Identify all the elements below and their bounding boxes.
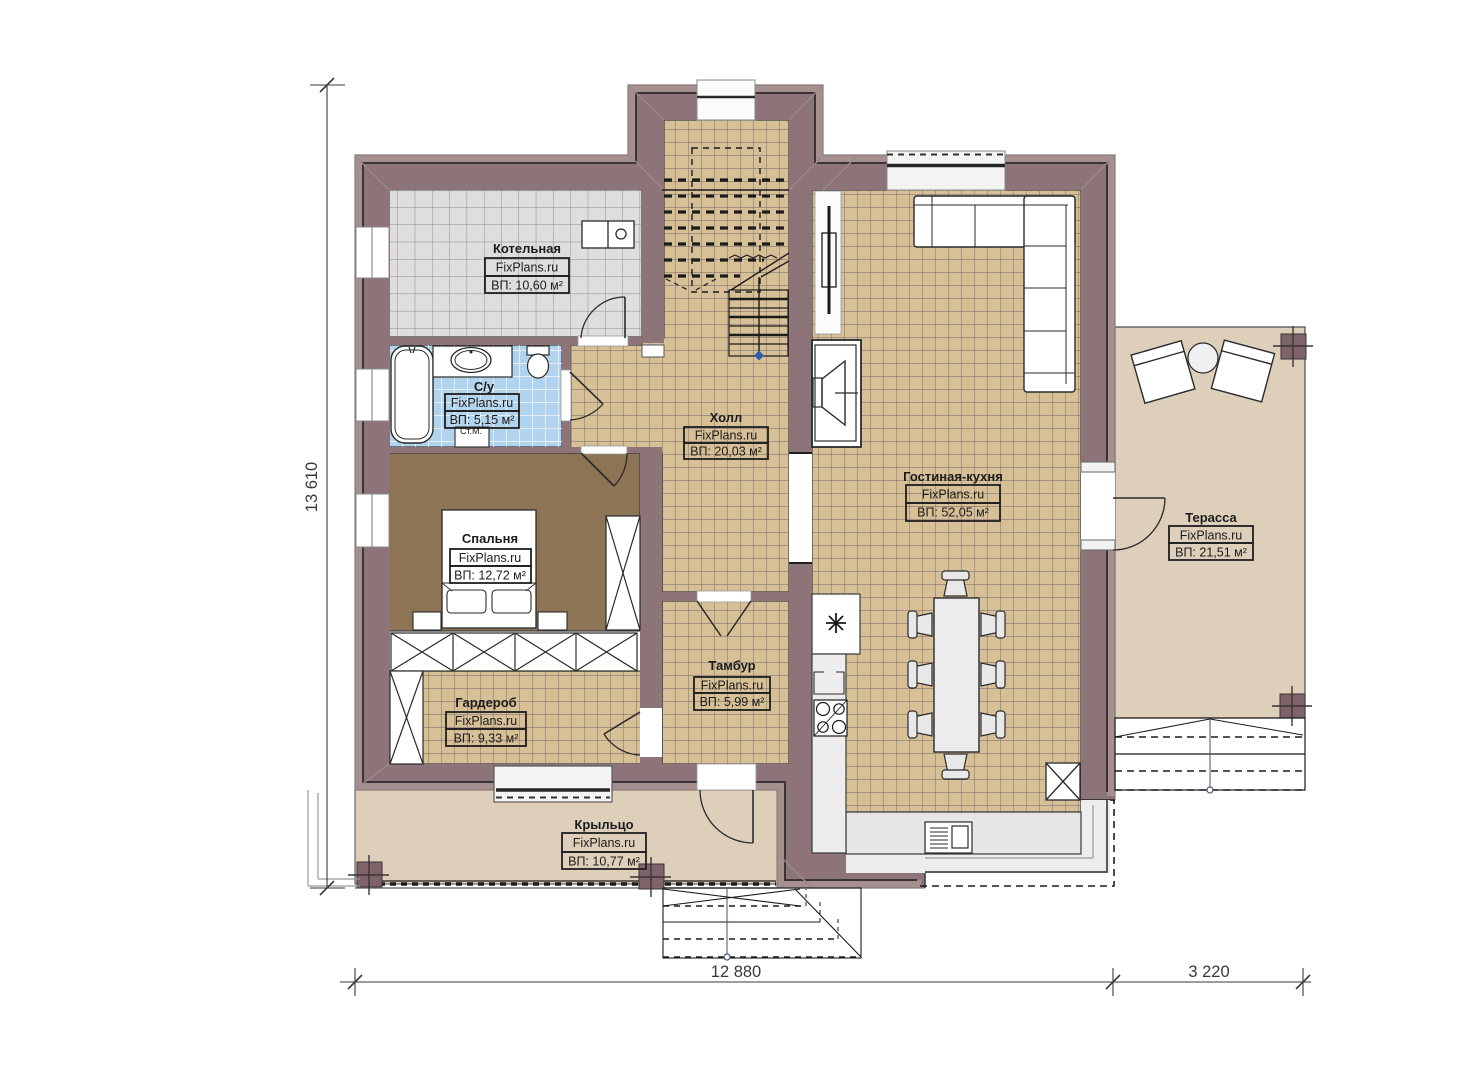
svg-text:ВП: 21,51 м²: ВП: 21,51 м² <box>1175 546 1247 560</box>
svg-text:FixPlans.ru: FixPlans.ru <box>455 714 518 728</box>
svg-text:Ст.М.: Ст.М. <box>460 426 482 436</box>
svg-text:С/у: С/у <box>474 379 495 394</box>
svg-text:Холл: Холл <box>710 410 743 425</box>
svg-text:12 880: 12 880 <box>711 963 761 981</box>
svg-text:ВП: 10,77 м²: ВП: 10,77 м² <box>568 855 640 869</box>
svg-text:FixPlans.ru: FixPlans.ru <box>1180 529 1243 543</box>
svg-text:FixPlans.ru: FixPlans.ru <box>496 261 559 275</box>
svg-text:Гостиная-кухня: Гостиная-кухня <box>903 469 1003 484</box>
svg-text:ВП: 5,99 м²: ВП: 5,99 м² <box>700 695 765 709</box>
svg-text:FixPlans.ru: FixPlans.ru <box>695 429 758 443</box>
svg-text:ВП: 12,72 м²: ВП: 12,72 м² <box>454 569 526 583</box>
svg-text:FixPlans.ru: FixPlans.ru <box>459 551 522 565</box>
svg-text:Терасса: Терасса <box>1185 510 1237 525</box>
svg-text:Спальня: Спальня <box>462 531 518 546</box>
svg-text:ВП: 9,33 м²: ВП: 9,33 м² <box>454 732 519 746</box>
svg-text:ВП: 5,15 м²: ВП: 5,15 м² <box>450 413 515 427</box>
svg-text:Котельная: Котельная <box>493 241 561 256</box>
svg-text:FixPlans.ru: FixPlans.ru <box>573 836 636 850</box>
svg-text:Крыльцо: Крыльцо <box>574 817 633 832</box>
svg-text:Гардероб: Гардероб <box>455 695 516 710</box>
svg-text:FixPlans.ru: FixPlans.ru <box>701 679 764 693</box>
svg-text:FixPlans.ru: FixPlans.ru <box>922 488 985 502</box>
svg-text:ВП: 20,03 м²: ВП: 20,03 м² <box>690 445 762 459</box>
svg-text:ВП: 10,60 м²: ВП: 10,60 м² <box>491 279 563 293</box>
svg-text:3 220: 3 220 <box>1188 963 1229 981</box>
svg-text:FixPlans.ru: FixPlans.ru <box>451 396 514 410</box>
svg-text:ВП: 52,05 м²: ВП: 52,05 м² <box>917 506 989 520</box>
svg-text:13 610: 13 610 <box>303 462 321 512</box>
svg-text:Тамбур: Тамбур <box>708 658 755 673</box>
